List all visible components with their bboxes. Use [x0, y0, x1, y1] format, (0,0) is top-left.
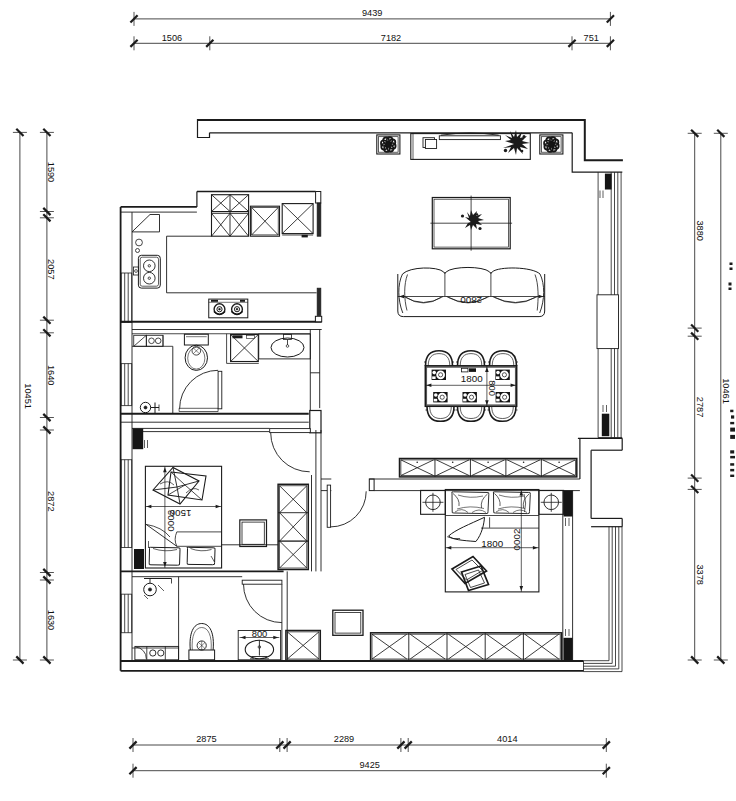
svg-text:9439: 9439	[362, 8, 382, 18]
svg-text:1590: 1590	[46, 162, 56, 182]
svg-text:0002: 0002	[511, 529, 522, 551]
svg-text:2875: 2875	[196, 734, 216, 744]
svg-text:3880: 3880	[695, 220, 705, 240]
svg-text:1506: 1506	[162, 33, 182, 43]
svg-text:2289: 2289	[334, 734, 354, 744]
svg-text:0002: 0002	[165, 510, 176, 532]
svg-text:3378: 3378	[695, 564, 705, 584]
svg-text:10461: 10461	[721, 378, 731, 404]
svg-text:1640: 1640	[46, 365, 56, 385]
svg-text:4014: 4014	[497, 734, 517, 744]
svg-text:10451: 10451	[23, 383, 33, 409]
svg-text:2800: 2800	[460, 295, 482, 306]
svg-text:9425: 9425	[359, 760, 379, 770]
svg-text:800: 800	[252, 628, 268, 639]
svg-text:2872: 2872	[46, 491, 56, 511]
svg-text:2787: 2787	[695, 397, 705, 417]
svg-text:1630: 1630	[46, 610, 56, 630]
svg-text:1800: 1800	[481, 538, 503, 549]
svg-text:7182: 7182	[381, 33, 401, 43]
svg-text:751: 751	[584, 33, 599, 43]
svg-text:1800: 1800	[461, 373, 483, 384]
svg-text:2057: 2057	[46, 259, 56, 279]
